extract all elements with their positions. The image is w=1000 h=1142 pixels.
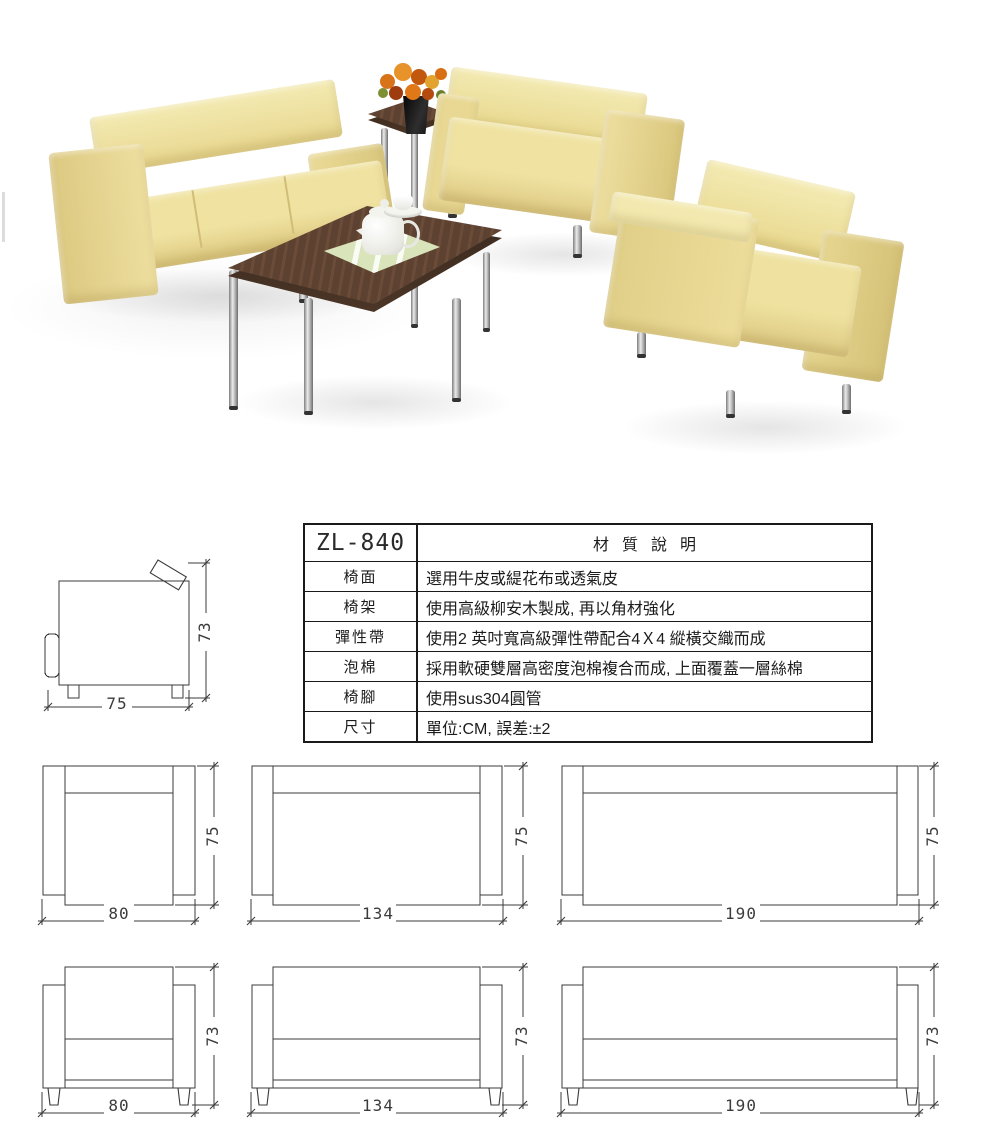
- dim-drawing-80x75: 80 75: [33, 753, 233, 933]
- dim-drawing-190x73: 190 73: [553, 961, 953, 1141]
- table-title: 材質說明: [418, 525, 871, 561]
- model-number: ZL-840: [305, 525, 418, 561]
- flower: [422, 88, 434, 100]
- spec-row-label: 彈性帶: [305, 622, 418, 651]
- sofa-leg: [573, 225, 582, 258]
- height-dim: 75: [203, 825, 222, 846]
- leaf: [378, 88, 388, 98]
- teapot: [362, 213, 404, 255]
- spec-row-value: 採用軟硬雙層高密度泡棉複合而成, 上面覆蓋一層絲棉: [418, 652, 871, 681]
- height-dim: 73: [203, 1025, 222, 1046]
- spec-row-value: 使用高級柳安木製成, 再以角材強化: [418, 592, 871, 621]
- flower: [435, 68, 447, 80]
- spec-row-label: 尺寸: [305, 712, 418, 741]
- spec-row-value: 使用sus304圓管: [418, 682, 871, 711]
- teapot-knob: [380, 199, 389, 208]
- material-spec-table: ZL-840 材質說明 椅面 選用牛皮或緹花布或透氣皮 椅架 使用高級柳安木製成…: [303, 523, 873, 743]
- spec-row-label: 椅面: [305, 562, 418, 591]
- spec-row: 彈性帶 使用2 英吋寬高級彈性帶配合4Ｘ4 縱橫交織而成: [305, 621, 871, 651]
- width-dim: 134: [362, 904, 394, 923]
- spec-row: 泡棉 採用軟硬雙層高密度泡棉複合而成, 上面覆蓋一層絲棉: [305, 651, 871, 681]
- spec-row-value: 單位:CM, 誤差:±2: [418, 712, 871, 741]
- spec-row: 椅面 選用牛皮或緹花布或透氣皮: [305, 561, 871, 591]
- table-leg: [452, 298, 461, 402]
- side-height-dim: 73: [195, 621, 214, 642]
- armrest: [48, 143, 158, 304]
- width-dim: 80: [108, 1096, 129, 1115]
- table-shadow: [235, 375, 515, 430]
- flower: [394, 63, 412, 81]
- table-leg: [483, 252, 490, 332]
- flower: [405, 84, 421, 100]
- catalog-page: { "photo": { "colors": { "sofa_light": "…: [0, 0, 1000, 1142]
- height-dim: 73: [923, 1025, 942, 1046]
- armchair-shadow: [620, 400, 910, 455]
- width-dim: 134: [362, 1096, 394, 1115]
- height-dim: 75: [512, 825, 531, 846]
- dim-drawing-190x75: 190 75: [553, 753, 953, 933]
- table-leg: [304, 298, 313, 415]
- spec-row: 椅腳 使用sus304圓管: [305, 681, 871, 711]
- spec-row-label: 椅腳: [305, 682, 418, 711]
- sofa-leg: [842, 384, 851, 414]
- sofa-leg: [637, 332, 646, 358]
- width-dim: 190: [725, 1096, 757, 1115]
- dim-drawing-134x73: 134 73: [243, 961, 533, 1141]
- height-dim: 73: [512, 1025, 531, 1046]
- table-leg: [229, 270, 238, 410]
- dim-drawing-134x75: 134 75: [243, 753, 533, 933]
- spec-row-label: 泡棉: [305, 652, 418, 681]
- spec-row-value: 使用2 英吋寬高級彈性帶配合4Ｘ4 縱橫交織而成: [418, 622, 871, 651]
- dim-drawing-80x73: 80 73: [33, 961, 233, 1141]
- product-photo: [0, 40, 1000, 465]
- flower: [389, 86, 403, 100]
- table-header-row: ZL-840 材質說明: [305, 525, 871, 561]
- spec-row: 尺寸 單位:CM, 誤差:±2: [305, 711, 871, 741]
- width-dim: 80: [108, 904, 129, 923]
- height-dim: 75: [923, 825, 942, 846]
- side-width-dim: 75: [106, 694, 127, 713]
- wall-line: [2, 192, 5, 242]
- side-view-drawing: 75 73: [38, 548, 223, 718]
- spec-row-label: 椅架: [305, 592, 418, 621]
- width-dim: 190: [725, 904, 757, 923]
- sofa-leg: [726, 390, 735, 418]
- spec-row-value: 選用牛皮或緹花布或透氣皮: [418, 562, 871, 591]
- spec-row: 椅架 使用高級柳安木製成, 再以角材強化: [305, 591, 871, 621]
